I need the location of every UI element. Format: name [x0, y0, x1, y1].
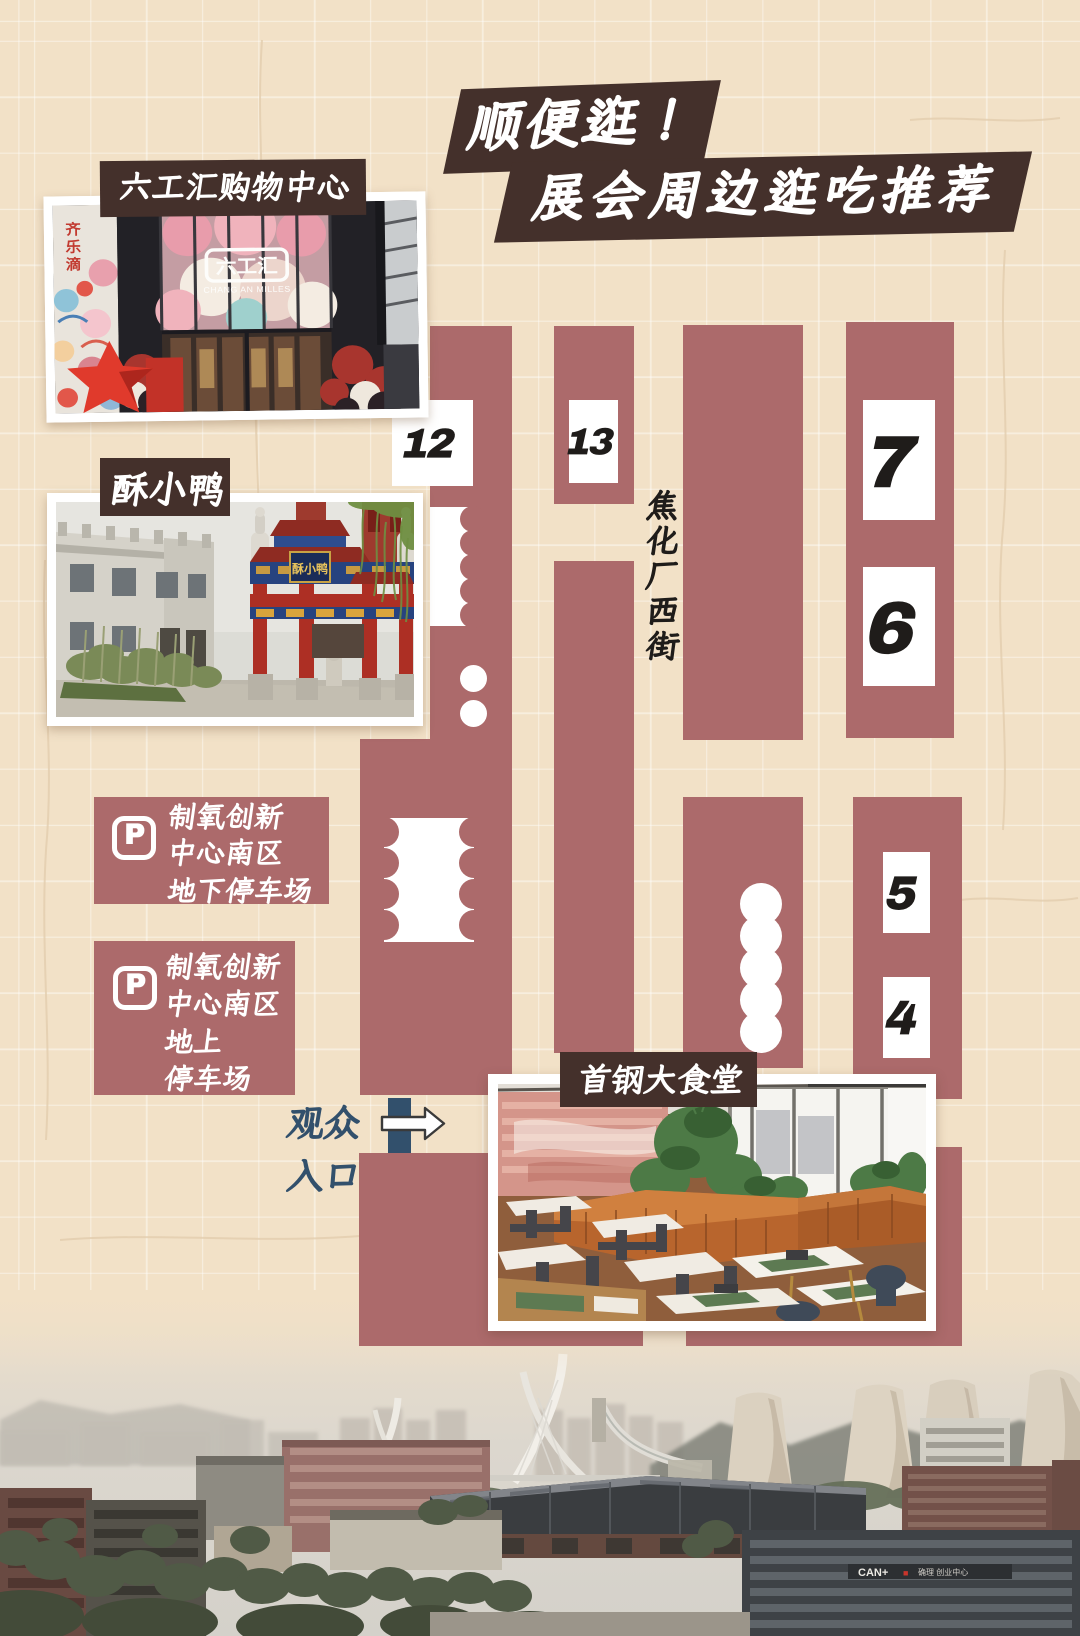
svg-text:滴: 滴 — [66, 256, 82, 274]
svg-text:酥小鸭: 酥小鸭 — [292, 561, 328, 576]
svg-text:CAN+: CAN+ — [858, 1567, 888, 1579]
svg-text:■: ■ — [903, 1568, 908, 1578]
svg-text:乐: 乐 — [65, 238, 81, 256]
svg-text:齐: 齐 — [65, 221, 82, 239]
svg-text:确理 创业中心: 确理 创业中心 — [918, 1567, 968, 1577]
svg-text:CHANG AN MILLES: CHANG AN MILLES — [203, 284, 290, 295]
svg-text:六工汇: 六工汇 — [216, 255, 278, 278]
